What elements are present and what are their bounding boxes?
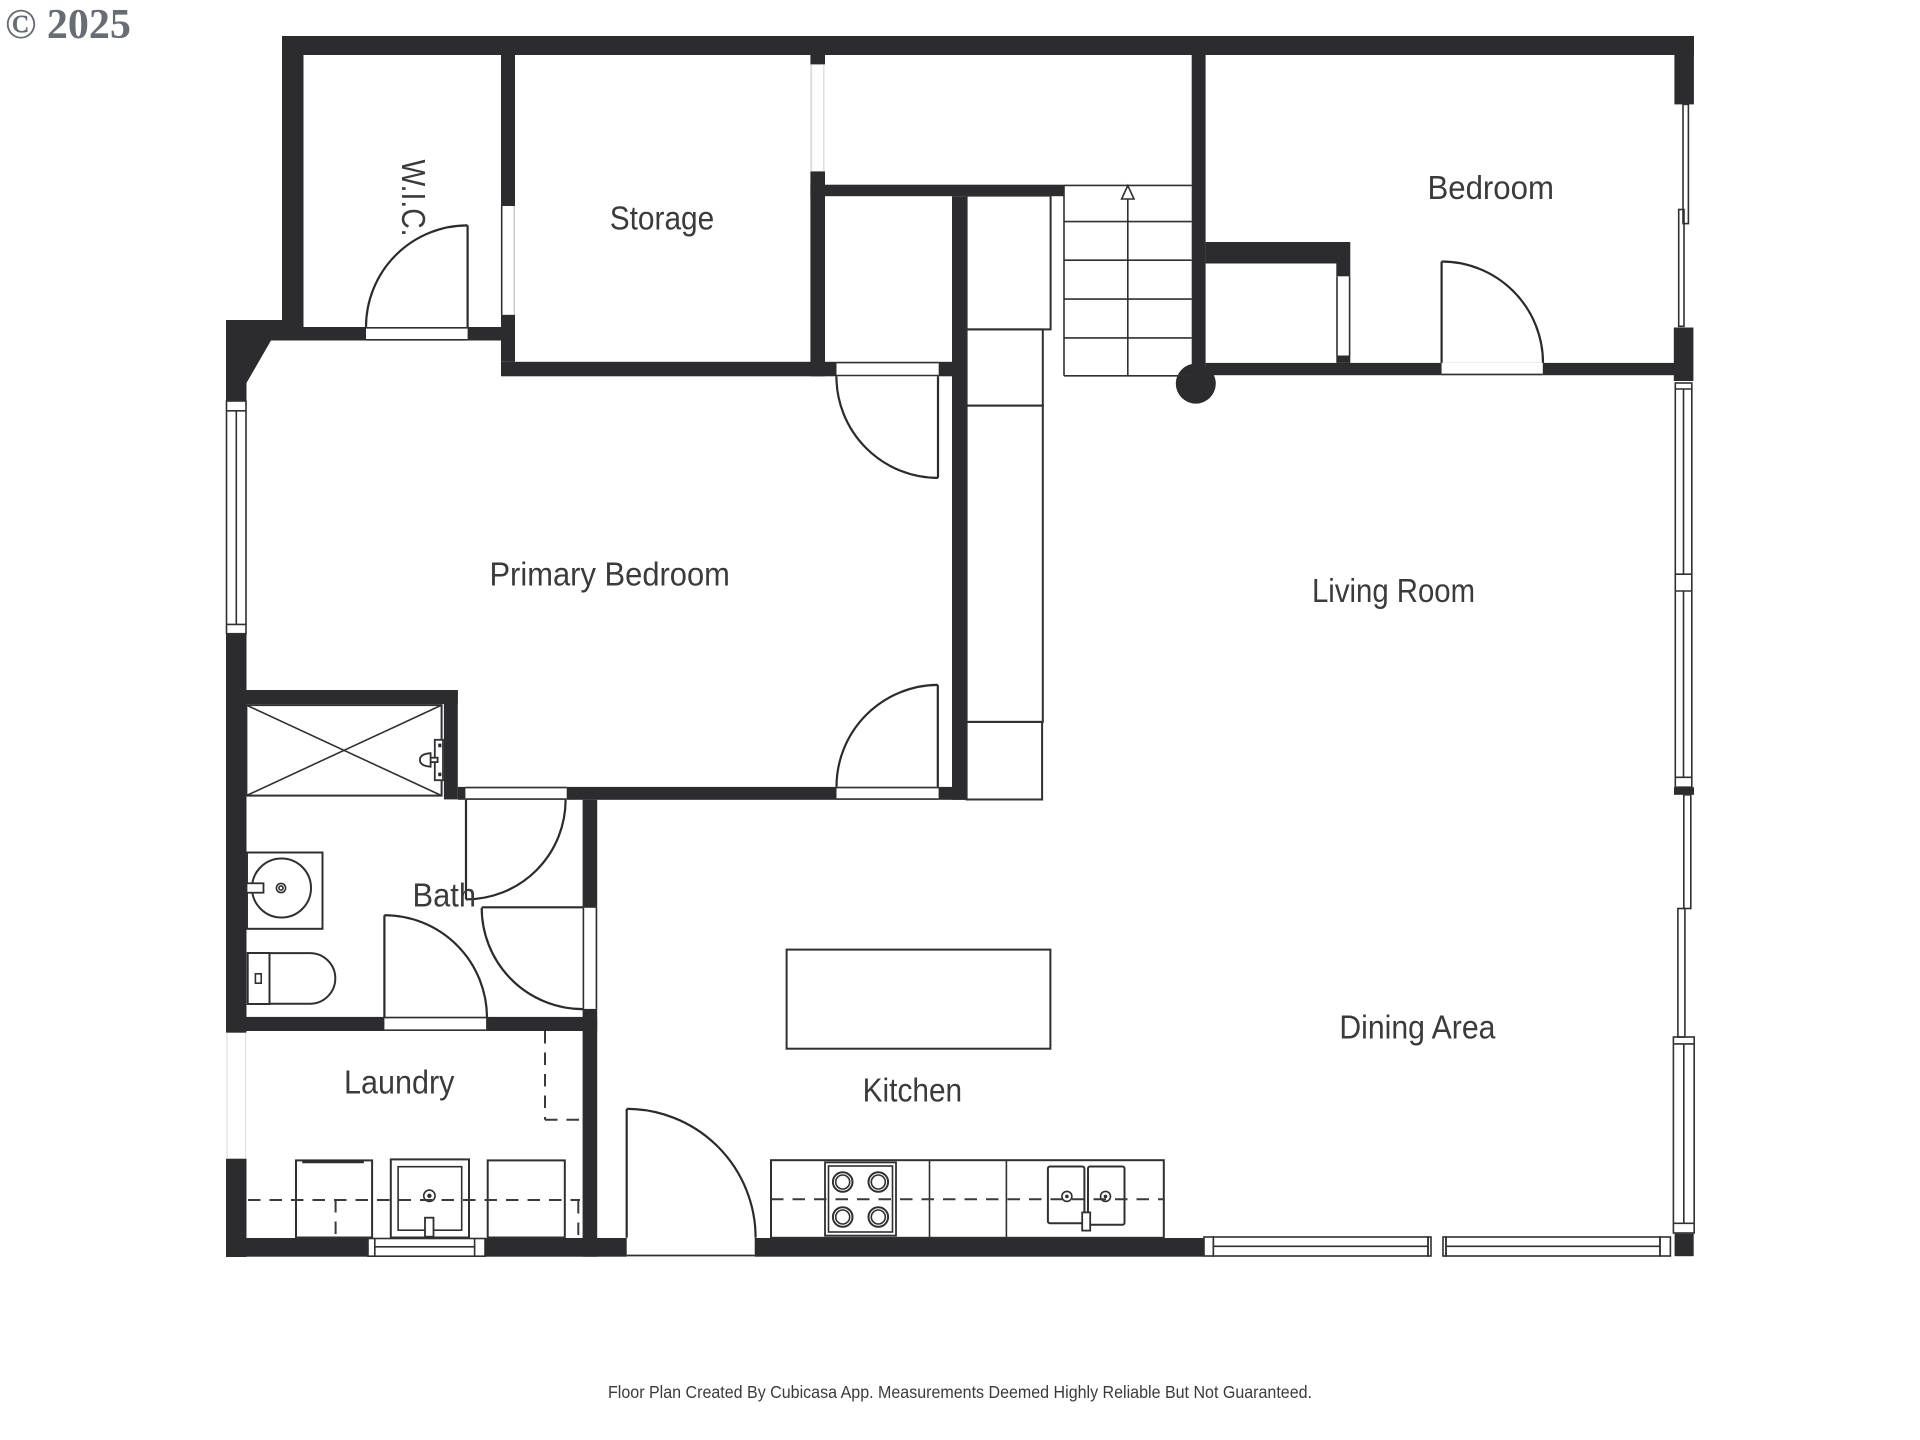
svg-text:Laundry: Laundry (344, 1064, 455, 1101)
svg-text:Primary Bedroom: Primary Bedroom (489, 555, 730, 592)
svg-text:Bath: Bath (413, 877, 477, 914)
svg-text:Storage: Storage (610, 199, 715, 236)
svg-text:W.I.C.: W.I.C. (395, 160, 432, 237)
svg-text:Living Room: Living Room (1312, 572, 1475, 609)
svg-text:Kitchen: Kitchen (863, 1072, 963, 1109)
svg-text:© 2025: © 2025 (5, 2, 131, 48)
svg-text:Bedroom: Bedroom (1427, 169, 1554, 206)
svg-text:Dining Area: Dining Area (1339, 1009, 1496, 1046)
svg-text:Floor Plan Created By Cubicasa: Floor Plan Created By Cubicasa App. Meas… (608, 1382, 1312, 1402)
